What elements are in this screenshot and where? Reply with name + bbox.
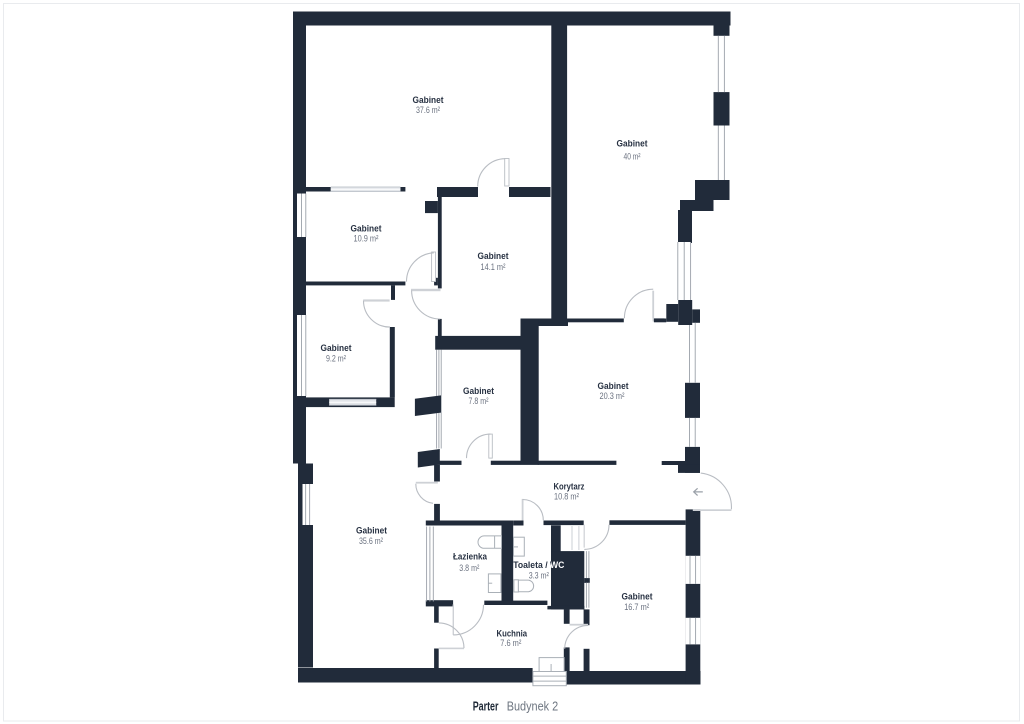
svg-text:Budynek 2: Budynek 2 <box>507 699 559 714</box>
svg-text:3.3 m²: 3.3 m² <box>529 570 549 581</box>
svg-text:10.9 m²: 10.9 m² <box>354 233 379 244</box>
svg-text:7.8 m²: 7.8 m² <box>469 395 489 406</box>
svg-text:9.2 m²: 9.2 m² <box>326 352 346 363</box>
svg-text:35.6 m²: 35.6 m² <box>359 535 383 546</box>
svg-text:10.8 m²: 10.8 m² <box>554 490 579 501</box>
svg-text:7.6 m²: 7.6 m² <box>500 637 521 648</box>
svg-text:20.3 m²: 20.3 m² <box>600 390 625 401</box>
svg-text:37.6 m²: 37.6 m² <box>416 104 440 115</box>
svg-text:14.1 m²: 14.1 m² <box>481 261 506 272</box>
svg-text:40 m²: 40 m² <box>624 151 641 162</box>
svg-text:3.8 m²: 3.8 m² <box>459 562 479 573</box>
svg-text:16.7 m²: 16.7 m² <box>624 601 649 612</box>
svg-text:Gabinet: Gabinet <box>617 139 649 150</box>
svg-text:Parter: Parter <box>473 699 499 714</box>
